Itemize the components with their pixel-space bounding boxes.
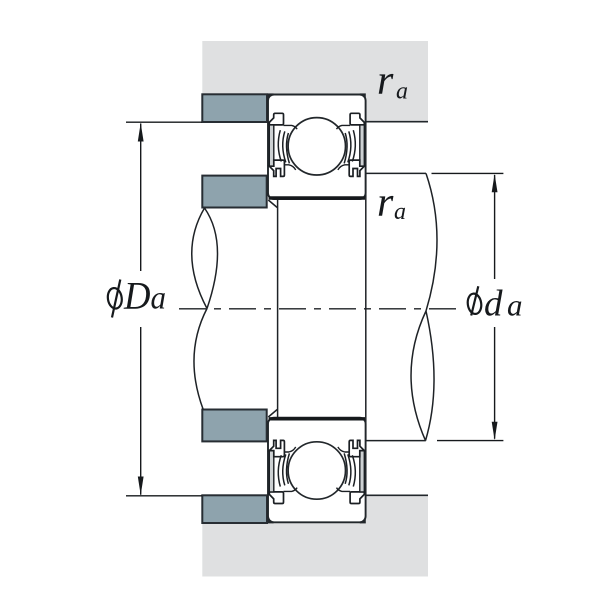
svg-text:r: r — [377, 58, 394, 104]
svg-text:a: a — [394, 199, 406, 225]
svg-text:r: r — [377, 180, 394, 226]
svg-text:a: a — [396, 79, 408, 105]
svg-text:Da: Da — [123, 275, 166, 318]
